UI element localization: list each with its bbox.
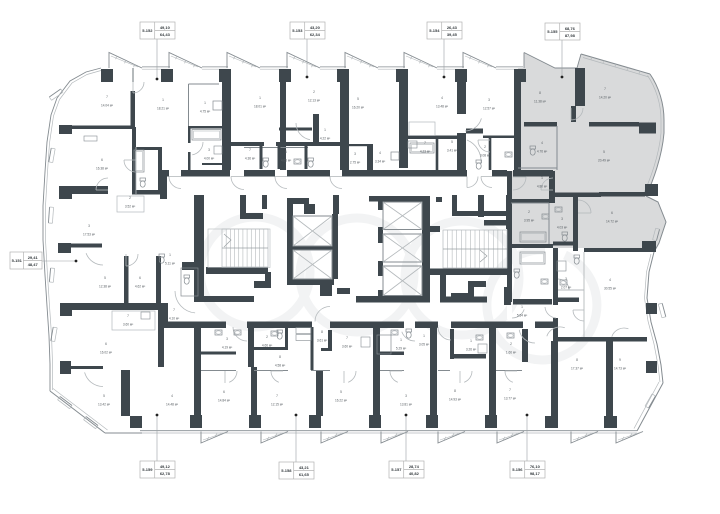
svg-text:1: 1: [162, 98, 164, 102]
svg-text:4.19 м²: 4.19 м²: [222, 346, 232, 350]
svg-text:4.22 м²: 4.22 м²: [320, 137, 330, 141]
svg-text:17.37 м²: 17.37 м²: [571, 367, 583, 371]
svg-text:7: 7: [604, 87, 606, 91]
svg-text:4.75 м²: 4.75 м²: [200, 110, 210, 114]
svg-text:4.05 м²: 4.05 м²: [281, 159, 291, 163]
svg-text:14.04 м²: 14.04 м²: [101, 104, 113, 108]
svg-text:3.05 м²: 3.05 м²: [419, 343, 429, 347]
svg-text:62,34: 62,34: [310, 32, 321, 37]
svg-text:5: 5: [603, 150, 605, 154]
svg-text:5: 5: [451, 140, 453, 144]
svg-text:13.81 м²: 13.81 м²: [400, 403, 412, 407]
svg-text:2: 2: [129, 196, 131, 200]
svg-text:14.73 м²: 14.73 м²: [614, 367, 626, 371]
svg-text:4.80 м²: 4.80 м²: [537, 185, 547, 189]
svg-text:3: 3: [354, 152, 356, 156]
svg-text:5.11 м²: 5.11 м²: [165, 262, 175, 266]
svg-text:14.84 м²: 14.84 м²: [218, 399, 230, 403]
svg-text:3: 3: [405, 394, 407, 398]
svg-text:5: 5: [104, 276, 106, 280]
svg-text:3: 3: [561, 217, 563, 221]
svg-text:62,78: 62,78: [160, 471, 171, 476]
svg-text:5-151: 5-151: [12, 258, 23, 263]
svg-text:2.75 м²: 2.75 м²: [350, 161, 360, 165]
svg-text:2: 2: [510, 342, 512, 346]
svg-text:16.38 м²: 16.38 м²: [96, 167, 108, 171]
svg-text:7: 7: [173, 308, 175, 312]
svg-text:48,47: 48,47: [28, 262, 39, 267]
svg-text:3: 3: [226, 337, 228, 341]
svg-text:4: 4: [171, 394, 173, 398]
svg-text:1: 1: [169, 253, 171, 257]
svg-text:3.41 м²: 3.41 м²: [447, 149, 457, 153]
svg-text:4.23 м²: 4.23 м²: [420, 150, 430, 154]
svg-text:4.00 м²: 4.00 м²: [204, 157, 214, 161]
svg-text:49,10: 49,10: [160, 25, 171, 30]
svg-text:7: 7: [509, 388, 511, 392]
svg-text:3.95 м²: 3.95 м²: [524, 219, 534, 223]
svg-text:5.29 м²: 5.29 м²: [396, 347, 406, 351]
svg-text:1: 1: [324, 128, 326, 132]
svg-text:3.61 м²: 3.61 м²: [317, 339, 327, 343]
svg-text:7: 7: [346, 336, 348, 340]
svg-text:6: 6: [223, 390, 225, 394]
svg-text:1: 1: [470, 339, 472, 343]
svg-text:3: 3: [88, 224, 90, 228]
svg-text:4: 4: [541, 141, 543, 145]
svg-text:76,10: 76,10: [530, 464, 541, 469]
svg-text:49,12: 49,12: [160, 464, 171, 469]
svg-text:4.76 м²: 4.76 м²: [537, 150, 547, 154]
svg-text:12.15 м²: 12.15 м²: [271, 403, 283, 407]
svg-text:2: 2: [313, 90, 315, 94]
svg-text:28,74: 28,74: [409, 464, 420, 469]
svg-text:2: 2: [484, 145, 486, 149]
svg-text:8: 8: [321, 330, 323, 334]
svg-text:30.55 м²: 30.55 м²: [604, 287, 616, 291]
svg-text:5-152: 5-152: [142, 28, 153, 33]
svg-text:40,82: 40,82: [409, 471, 420, 476]
svg-text:4: 4: [609, 278, 611, 282]
svg-text:3.34 м²: 3.34 м²: [375, 160, 385, 164]
svg-text:13.77 м²: 13.77 м²: [504, 397, 516, 401]
svg-text:4.62 м²: 4.62 м²: [135, 285, 145, 289]
svg-text:3.60 м²: 3.60 м²: [342, 345, 352, 349]
svg-text:6: 6: [101, 158, 103, 162]
svg-text:3.08 м²: 3.08 м²: [480, 154, 490, 158]
svg-text:14.72 м²: 14.72 м²: [606, 220, 618, 224]
svg-text:7: 7: [106, 95, 108, 99]
svg-text:16.22 м²: 16.22 м²: [335, 399, 347, 403]
svg-text:1: 1: [400, 338, 402, 342]
svg-text:13.42 м²: 13.42 м²: [98, 403, 110, 407]
svg-text:11.38 м²: 11.38 м²: [534, 100, 546, 104]
svg-text:2.07 м²: 2.07 м²: [561, 286, 571, 290]
svg-text:5: 5: [340, 390, 342, 394]
svg-text:17.53 м²: 17.53 м²: [83, 233, 95, 237]
svg-text:3: 3: [488, 98, 490, 102]
svg-text:14.48 м²: 14.48 м²: [166, 403, 178, 407]
svg-text:5-157: 5-157: [391, 467, 402, 472]
svg-text:5-153: 5-153: [292, 28, 303, 33]
svg-text:8: 8: [539, 91, 541, 95]
svg-text:4: 4: [379, 151, 381, 155]
svg-text:1: 1: [541, 176, 543, 180]
svg-text:4.36 м²: 4.36 м²: [245, 157, 255, 161]
svg-text:87,98: 87,98: [565, 33, 576, 38]
svg-text:13.48 м²: 13.48 м²: [436, 105, 448, 109]
svg-text:5-159: 5-159: [142, 467, 153, 472]
svg-text:3.26 м²: 3.26 м²: [466, 348, 476, 352]
svg-text:12.57 м²: 12.57 м²: [483, 107, 495, 111]
svg-text:6: 6: [139, 276, 141, 280]
svg-text:20.49 м²: 20.49 м²: [598, 159, 610, 163]
svg-text:4.03 м²: 4.03 м²: [557, 226, 567, 230]
svg-text:7: 7: [127, 314, 129, 318]
svg-text:7: 7: [424, 141, 426, 145]
svg-text:8: 8: [279, 355, 281, 359]
svg-text:16.20 м²: 16.20 м²: [352, 106, 364, 110]
svg-text:8: 8: [454, 389, 456, 393]
svg-text:5: 5: [357, 97, 359, 101]
svg-text:4.58 м²: 4.58 м²: [275, 364, 285, 368]
svg-text:3: 3: [565, 277, 567, 281]
svg-text:18.21 м²: 18.21 м²: [157, 107, 169, 111]
svg-text:39,45: 39,45: [447, 32, 458, 37]
svg-text:26,43: 26,43: [447, 25, 458, 30]
svg-text:4.10 м²: 4.10 м²: [169, 317, 179, 321]
svg-text:5.54 м²: 5.54 м²: [517, 314, 527, 318]
svg-text:6: 6: [611, 211, 613, 215]
svg-text:5-154: 5-154: [429, 28, 440, 33]
svg-text:9: 9: [619, 358, 621, 362]
svg-text:61,65: 61,65: [299, 472, 310, 477]
svg-text:18.01 м²: 18.01 м²: [254, 105, 266, 109]
svg-text:3.60 м²: 3.60 м²: [123, 323, 133, 327]
svg-text:4: 4: [441, 96, 443, 100]
svg-text:7: 7: [276, 394, 278, 398]
svg-text:3: 3: [208, 148, 210, 152]
svg-text:5: 5: [103, 394, 105, 398]
svg-text:6: 6: [285, 150, 287, 154]
svg-text:16.02 м²: 16.02 м²: [100, 351, 112, 355]
svg-text:14.93 м²: 14.93 м²: [449, 398, 461, 402]
svg-text:68,76: 68,76: [565, 26, 576, 31]
svg-text:43,21: 43,21: [299, 465, 310, 470]
svg-text:7: 7: [249, 148, 251, 152]
svg-text:1: 1: [259, 96, 261, 100]
svg-text:64,43: 64,43: [160, 32, 171, 37]
svg-text:29,41: 29,41: [28, 255, 39, 260]
svg-text:5-155: 5-155: [547, 29, 558, 34]
svg-text:98,17: 98,17: [530, 471, 541, 476]
svg-text:5-156: 5-156: [512, 467, 523, 472]
svg-text:14.20 м²: 14.20 м²: [599, 96, 611, 100]
svg-text:2: 2: [528, 210, 530, 214]
svg-text:43,20: 43,20: [310, 25, 321, 30]
svg-text:1: 1: [204, 101, 206, 105]
svg-text:1.66 м²: 1.66 м²: [506, 351, 516, 355]
svg-text:12.13 м²: 12.13 м²: [308, 99, 320, 103]
svg-text:1: 1: [521, 305, 523, 309]
svg-text:1: 1: [423, 334, 425, 338]
svg-text:3.52 м²: 3.52 м²: [125, 205, 135, 209]
svg-text:6: 6: [105, 342, 107, 346]
svg-text:4.66 м²: 4.66 м²: [262, 344, 272, 348]
svg-text:12.38 м²: 12.38 м²: [99, 285, 111, 289]
svg-text:2: 2: [266, 335, 268, 339]
svg-text:8: 8: [576, 358, 578, 362]
svg-text:5-158: 5-158: [281, 468, 292, 473]
